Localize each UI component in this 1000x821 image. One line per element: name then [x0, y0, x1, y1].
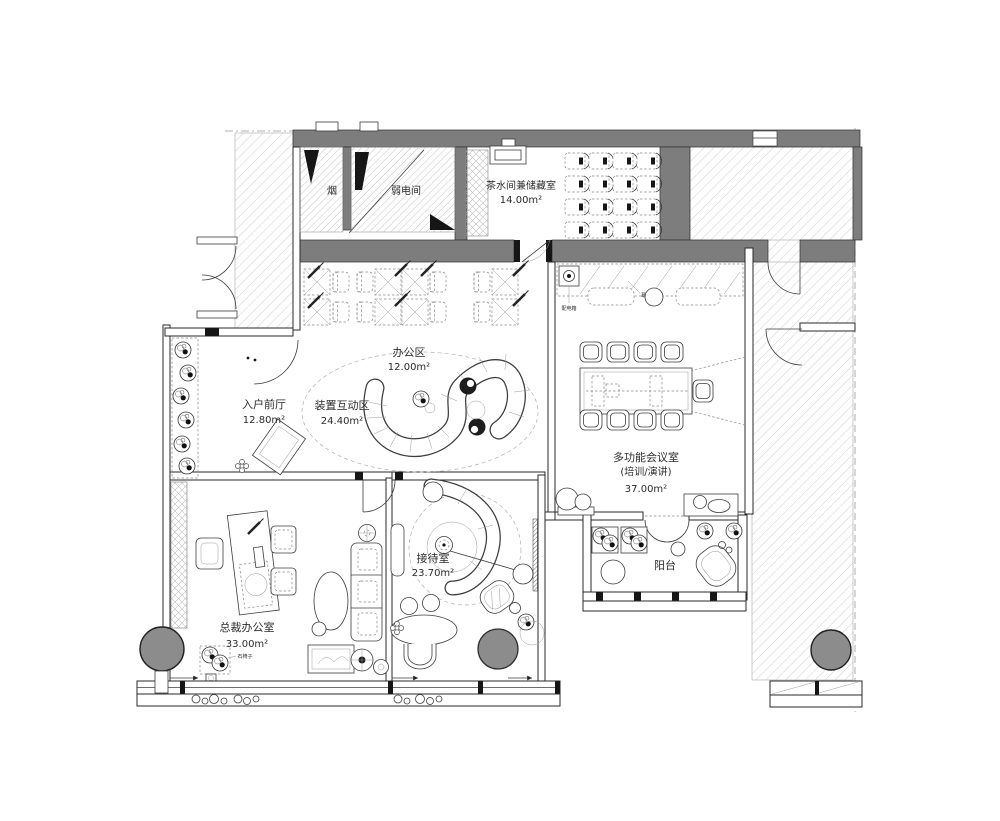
room-area-meeting: 37.00m²	[625, 484, 667, 495]
room-label-low-voltage: 弱电间	[391, 184, 421, 197]
desk-cluster-middle	[357, 261, 446, 326]
room-label-foyer: 入户前厅	[242, 397, 286, 411]
dining-set	[390, 595, 457, 670]
pantry-shelf	[466, 150, 488, 236]
room-label-office: 办公区	[393, 346, 426, 359]
meeting-right-wall	[745, 248, 753, 514]
oval-rug	[314, 572, 348, 630]
door-gap-hatch	[768, 240, 800, 262]
balcony-plant	[697, 523, 713, 539]
balcony-bottom-wall	[583, 592, 746, 601]
room-area-foyer: 12.80m²	[243, 415, 285, 426]
right-sill	[770, 695, 862, 707]
room-area-pantry: 14.00m²	[500, 195, 542, 206]
right-top-wall	[853, 147, 862, 240]
round-table	[601, 560, 625, 584]
room-label-ceo: 总裁办公室	[220, 620, 275, 634]
cabinet	[588, 288, 634, 305]
room-area-installation: 24.40m²	[321, 416, 363, 427]
room-label-meeting: 多功能会议室	[613, 450, 679, 464]
meeting-left-wall	[548, 262, 555, 515]
reception-top-wall	[392, 472, 545, 480]
round-side-tables	[351, 649, 389, 675]
desk-cluster-right	[474, 261, 529, 326]
room-low-voltage: 弱电间	[349, 147, 455, 233]
mid-wall-far-right	[800, 240, 855, 262]
balcony-left-wall	[583, 512, 591, 600]
smoke-lv-divider	[343, 147, 351, 230]
corridor-right-wall	[293, 147, 300, 330]
balcony-double-door	[645, 520, 689, 542]
double-door-leaf	[202, 246, 236, 280]
planter-strip	[172, 338, 198, 478]
room-label-smoke: 烟	[327, 184, 337, 197]
room-label-pantry: 茶水间兼储藏室	[486, 179, 556, 192]
room-meeting: 配电箱 幕布 多功能会议室 (培训/演讲) 37.00m²	[556, 264, 745, 516]
stone-planter	[200, 646, 236, 682]
mid-wall-right	[552, 240, 768, 262]
tv-cabinet	[308, 645, 354, 673]
stacked-chairs	[565, 153, 662, 238]
guest-chair	[271, 526, 296, 553]
mid-wall-left	[293, 240, 514, 262]
reception-right-wall	[538, 475, 545, 683]
top-wall-window	[753, 131, 777, 146]
room-pantry: 茶水间兼储藏室 14.00m²	[466, 139, 662, 238]
room-balcony: 阳台	[592, 523, 742, 591]
room-sub-meeting: (培训/演讲)	[620, 465, 671, 478]
round-stool	[645, 288, 663, 306]
room-label-reception: 接待室	[417, 551, 450, 565]
curved-chair	[691, 541, 741, 592]
room-ceo: 石椅子 总裁办公室 33.00m²	[170, 511, 389, 682]
balcony-sill	[583, 601, 746, 611]
foyer-bench	[252, 419, 305, 475]
annotation-stone-chair: 石椅子	[237, 653, 252, 660]
wall-bench	[391, 524, 404, 576]
room-label-installation: 装置互动区	[315, 399, 370, 412]
pantry-right-wall	[660, 147, 690, 240]
ceiling-fixture	[359, 525, 376, 542]
room-label-balcony: 阳台	[654, 558, 676, 572]
entry-door-jamb	[197, 311, 237, 318]
ceo-desk	[227, 511, 279, 615]
room-foyer: 入户前厅 12.80m²	[172, 338, 306, 478]
power-box	[559, 266, 579, 303]
desk-cluster-left	[304, 263, 349, 326]
ceo-reception-divider	[386, 478, 392, 683]
room-smoke-shaft: 烟	[300, 147, 343, 232]
room-area-reception: 23.70m²	[412, 568, 454, 579]
ceo-left-insulated-wall	[171, 482, 187, 628]
side-table	[684, 494, 738, 516]
room-area-office: 12.00m²	[388, 362, 430, 373]
foyer-door-arc	[254, 340, 298, 384]
dark-ottoman	[478, 629, 518, 669]
floor-plan-svg: 烟 弱电间 茶水间兼储藏室 14.00m² 办公区 12.00m²	[0, 0, 1000, 821]
room-reception: 接待室 23.70m²	[390, 482, 544, 678]
corridor-hatch	[235, 133, 293, 330]
faucet	[502, 139, 515, 146]
room-area-ceo: 33.00m²	[226, 639, 268, 650]
bottom-sill	[137, 694, 560, 706]
double-door-leaf	[202, 275, 236, 309]
conference-table-group	[580, 342, 745, 430]
guest-chair	[271, 568, 296, 595]
ceo-lounge-chair	[196, 538, 223, 569]
annotation-power-box: 配电箱	[561, 305, 576, 312]
room-office: 办公区 12.00m²	[304, 261, 529, 374]
floor-plan-drawing: 烟 弱电间 茶水间兼储藏室 14.00m² 办公区 12.00m²	[0, 0, 1000, 821]
vent-box	[360, 122, 378, 131]
entry-door-jamb	[197, 237, 237, 244]
foyer-flower	[235, 459, 248, 472]
balcony-plant	[726, 523, 742, 539]
upper-right-hatch	[690, 147, 853, 240]
stone-seat	[312, 622, 326, 636]
foyer-top-wall	[165, 328, 293, 336]
column-right	[811, 630, 851, 670]
column-left	[140, 627, 184, 671]
cabinet	[676, 288, 720, 305]
floor-lamp	[556, 488, 594, 515]
vent-box	[316, 122, 338, 131]
lv-pantry-divider	[455, 147, 467, 240]
wall-screen	[533, 519, 538, 591]
ceo-sofa	[351, 543, 382, 641]
